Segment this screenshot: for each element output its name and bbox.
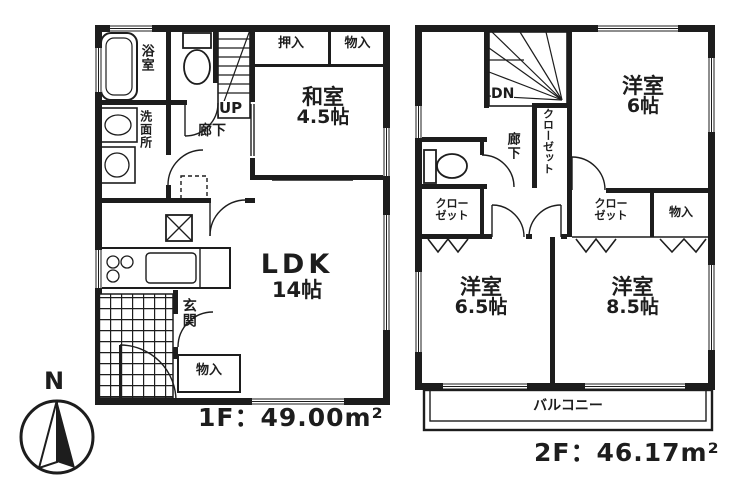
bedroom65-label: 洋室 6.5帖 <box>425 276 537 318</box>
washroom-label: 洗面所 <box>139 110 152 149</box>
bedroom85-size: 8.5帖 <box>570 298 695 318</box>
bedroom6-door-gap <box>572 188 606 193</box>
stairs-up-label: UP <box>219 101 242 117</box>
floorplan-page: 浴室 洗面所 UP 廊下 押入 物入 和室 4.5帖 LDK 14帖 玄関 物入… <box>0 0 735 496</box>
closet-left-line2: ゼット <box>424 210 480 222</box>
washitsu-label: 和室 4.5帖 <box>262 86 384 128</box>
bedroom6-label: 洋室 6帖 <box>588 75 698 117</box>
bedroom65-name: 洋室 <box>425 276 537 298</box>
floor2-area-label: 2F：46.17m² <box>534 440 720 466</box>
bathtub-icon <box>101 33 137 100</box>
bath-label: 浴室 <box>139 44 153 72</box>
ldk-label: LDK 14帖 <box>232 251 362 301</box>
toilet-icon-2f <box>424 150 467 183</box>
bedroom85-label: 洋室 8.5帖 <box>570 276 695 318</box>
range-hood-icon <box>181 176 207 200</box>
balcony-label: バルコニー <box>424 399 712 414</box>
entrance-label: 玄関 <box>181 298 196 328</box>
hall-closet-label: クローゼット <box>542 108 554 174</box>
hallway-1f-label: 廊下 <box>198 124 226 139</box>
closet-left-line1: クロー <box>424 198 480 210</box>
washitsu-size: 4.5帖 <box>262 108 384 128</box>
washitsu-name: 和室 <box>262 86 384 108</box>
storage-2f-label: 物入 <box>656 206 706 219</box>
sink-table-icon <box>166 215 192 241</box>
kitchen-counter <box>100 248 230 288</box>
bedroom85-name: 洋室 <box>570 276 695 298</box>
monoire-closet-label: 物入 <box>331 37 384 51</box>
floor1-plan <box>95 25 390 405</box>
entrance-tile-area <box>99 294 173 398</box>
closet-right-line1: クロー <box>576 198 646 210</box>
washing-machine-icon <box>99 147 135 183</box>
closet-right-label: クロー ゼット <box>576 198 646 221</box>
bedroom6-size: 6帖 <box>588 97 698 117</box>
hallway-2f-label: 廊下 <box>505 132 519 160</box>
bedroom65-size: 6.5帖 <box>425 298 537 318</box>
closet-right-line2: ゼット <box>576 210 646 222</box>
bedroom6-name: 洋室 <box>588 75 698 97</box>
closet-bifold-marks <box>422 237 708 252</box>
stairs-down-label: DN <box>491 87 514 102</box>
floor1-area-label: 1F：49.00m² <box>198 405 384 431</box>
ldk-size: 14帖 <box>232 279 362 301</box>
oshiire-closet-label: 押入 <box>256 37 326 51</box>
north-compass <box>21 400 93 473</box>
closet-left-label: クロー ゼット <box>424 198 480 221</box>
compass-north-label: N <box>44 369 64 394</box>
washbasin-icon <box>99 108 137 142</box>
ldk-name: LDK <box>232 251 362 279</box>
toilet-icon-1f <box>183 33 211 84</box>
entrance-storage-label: 物入 <box>178 364 240 378</box>
